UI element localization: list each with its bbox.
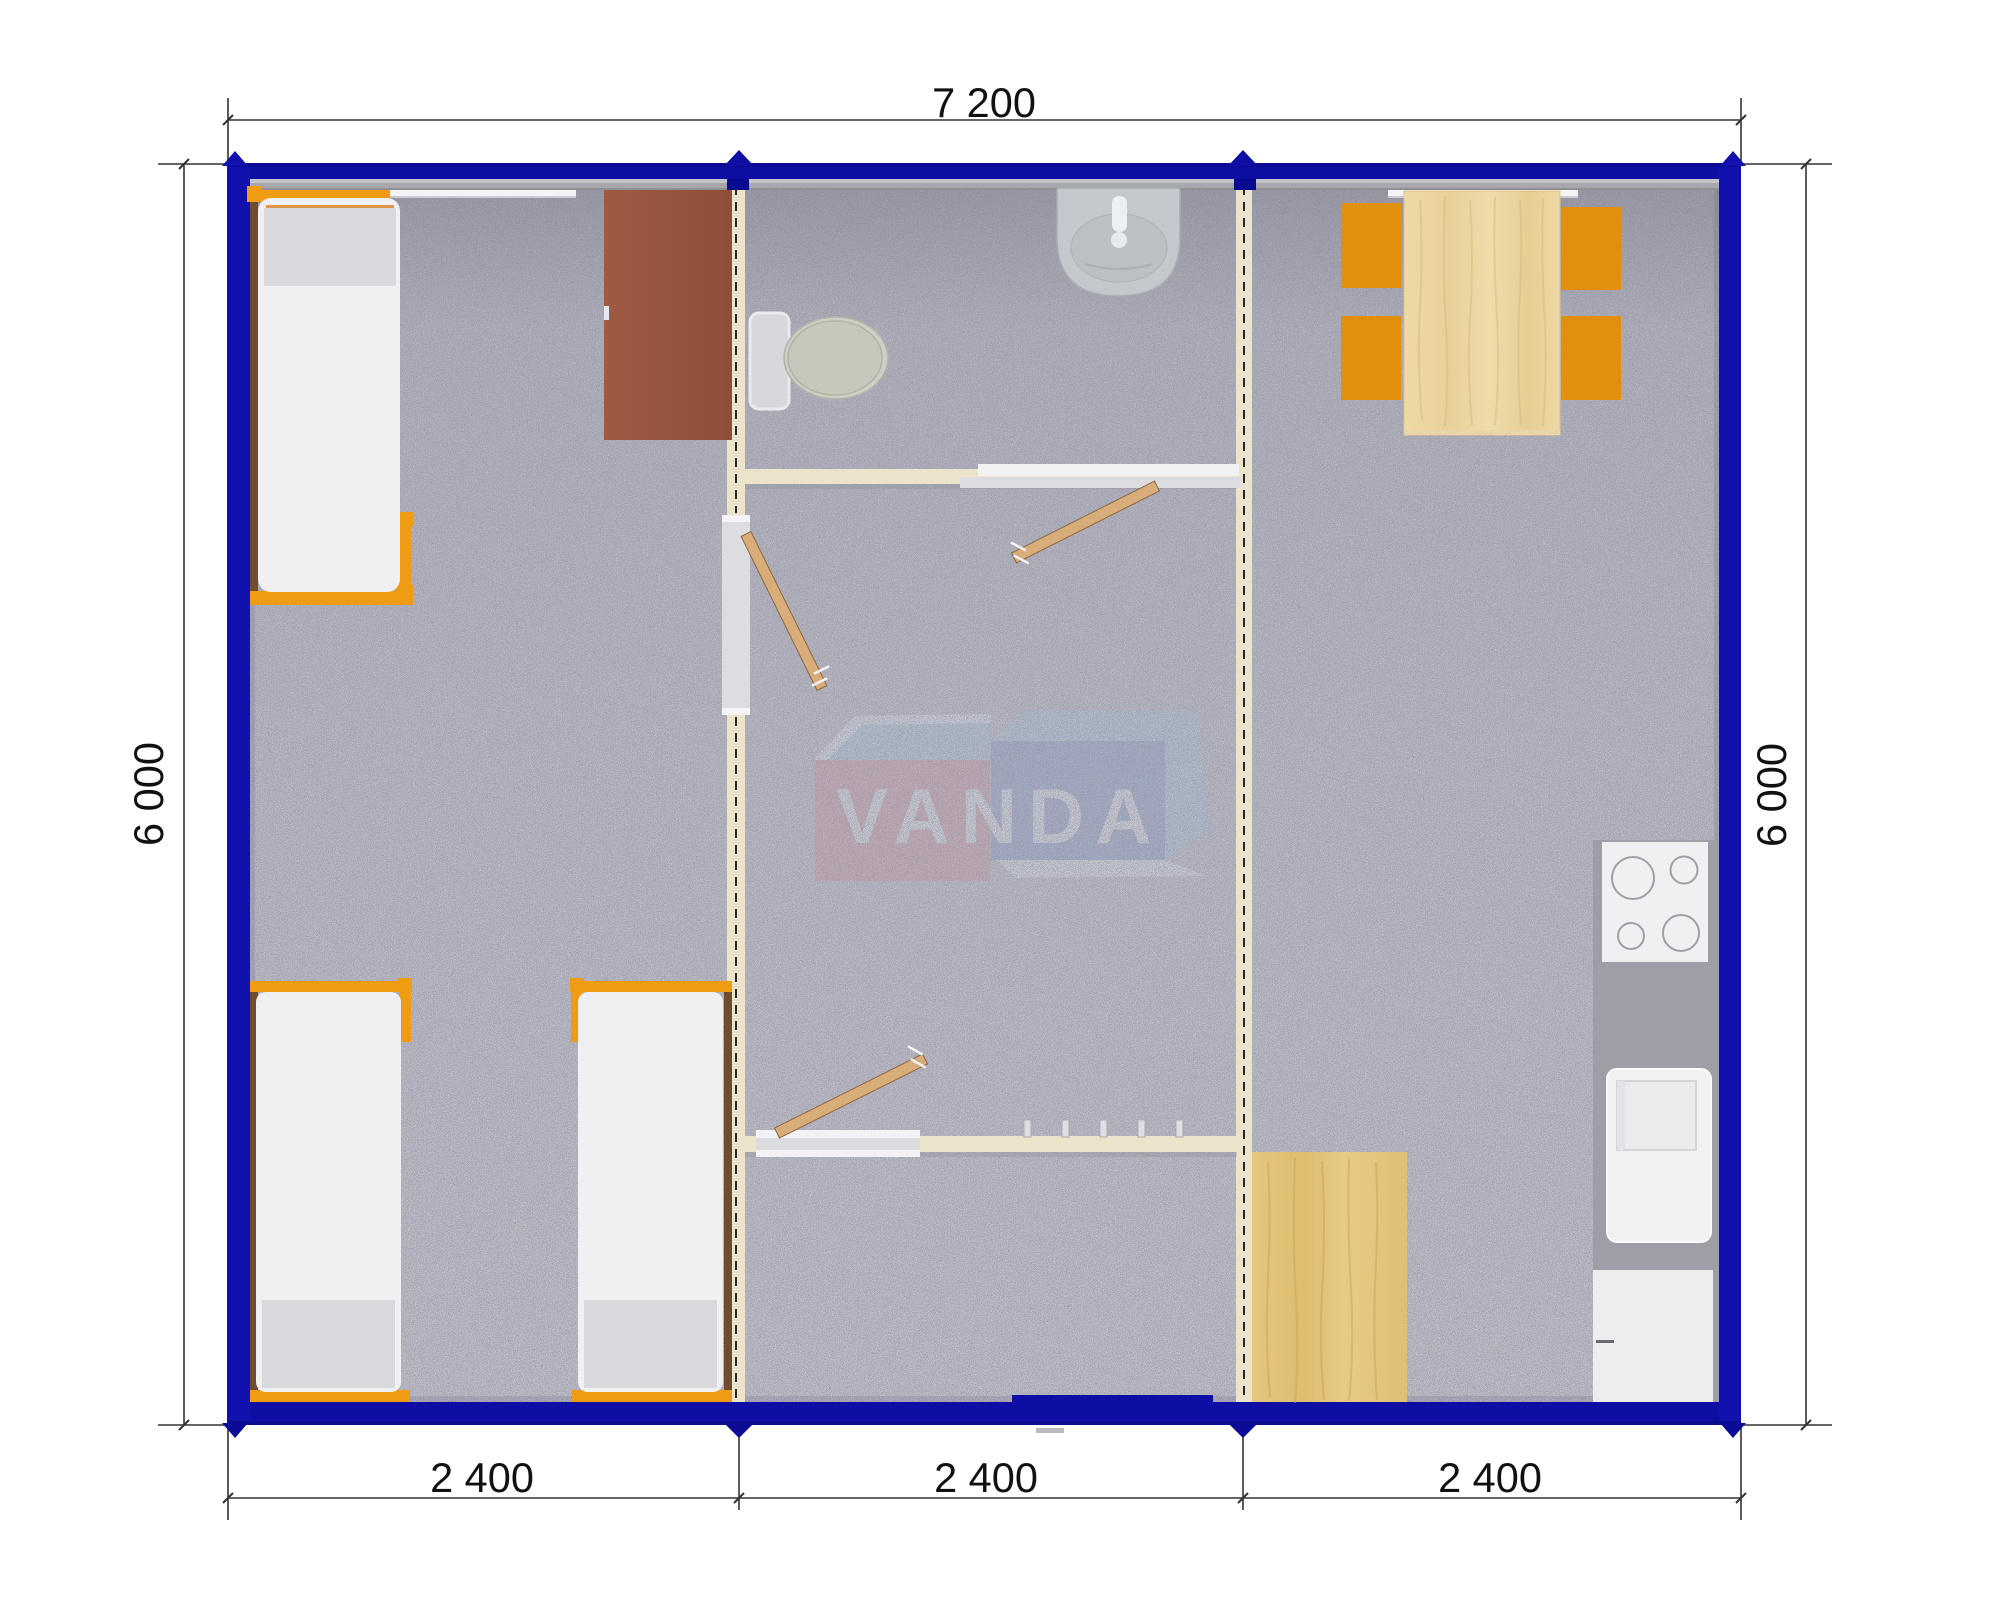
svg-text:2 400: 2 400 xyxy=(934,1454,1038,1501)
svg-text:6 000: 6 000 xyxy=(125,742,172,846)
svg-text:6 000: 6 000 xyxy=(1748,743,1795,847)
svg-text:2 400: 2 400 xyxy=(1438,1454,1542,1501)
svg-text:2 400: 2 400 xyxy=(430,1454,534,1501)
svg-text:7 200: 7 200 xyxy=(932,79,1036,126)
